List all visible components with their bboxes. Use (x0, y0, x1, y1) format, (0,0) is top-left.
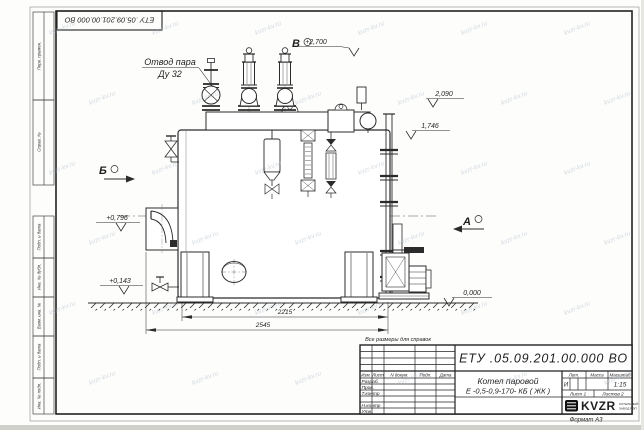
view-a-ref-circle (475, 216, 482, 223)
svg-text:kvzr-kv.ru: kvzr-kv.ru (397, 90, 426, 107)
svg-text:kvzr-kv.ru: kvzr-kv.ru (357, 20, 386, 37)
support-leg-front (177, 252, 213, 302)
burner-unit (379, 247, 431, 299)
elevation-0796: +0,796 (106, 215, 128, 222)
top-stamp-number: ЕТУ .05.09.201.00.000 ВО (64, 16, 154, 25)
svg-text:kvzr-kv.ru: kvzr-kv.ru (460, 20, 489, 37)
scan-shadow-bottom (0, 425, 644, 430)
view-label-b: Б (99, 165, 107, 177)
row-utv: Утв. (362, 409, 373, 415)
drawing-sheet: Перв. примен. Справ. № Подп. и дата Инв.… (0, 0, 644, 430)
svg-text:kvzr-kv.ru: kvzr-kv.ru (151, 20, 180, 37)
margin-label-inv-podl: Инв. № подл. (37, 383, 42, 410)
elevation-1746: 1,746 (421, 123, 439, 130)
svg-text:kvzr-kv.ru: kvzr-kv.ru (500, 90, 529, 107)
support-leg-rear (341, 252, 377, 302)
dimension-inner-value: 2215 (277, 309, 293, 316)
brand-subtitle-1: КОТЕЛЬНЫЙ (619, 402, 638, 406)
view-label-a: А (462, 216, 471, 228)
view-a-arrow (453, 226, 462, 233)
svg-text:kvzr-kv.ru: kvzr-kv.ru (254, 20, 283, 37)
elevation-0143: +0,143 (109, 278, 131, 285)
row-razrab: Разраб. (362, 379, 379, 385)
svg-text:kvzr-kv.ru: kvzr-kv.ru (48, 300, 77, 317)
svg-text:kvzr-kv.ru: kvzr-kv.ru (563, 20, 592, 37)
steam-outlet-label-2: Ду 32 (157, 69, 181, 79)
sheet-number: Лист 1 (569, 392, 587, 398)
svg-text:kvzr-kv.ru: kvzr-kv.ru (48, 20, 77, 37)
boiler-drawing (88, 48, 478, 311)
col-header-date: Дата (439, 372, 452, 377)
svg-text:kvzr-kv.ru: kvzr-kv.ru (151, 160, 180, 177)
steam-outlet-label-1: Отвод пара (144, 57, 195, 67)
svg-text:kvzr-kv.ru: kvzr-kv.ru (191, 370, 220, 387)
front-elbow-duct (146, 204, 178, 253)
svg-text:kvzr-kv.ru: kvzr-kv.ru (48, 160, 77, 177)
svg-text:kvzr-kv.ru: kvzr-kv.ru (294, 370, 323, 387)
view-b-ref-circle (111, 166, 118, 173)
margin-label-inv-dubl: Инв. № дубл. (37, 264, 42, 290)
reference-note: Все размеры для справок (365, 337, 431, 343)
product-name-line2: Е -0,5-0,9-170- КБ ( ЖК ) (466, 387, 551, 396)
row-prov: Пров. (362, 385, 375, 391)
lit-label: Лит. (568, 372, 580, 377)
title-doc-number: ЕТУ .05.09.201.00.000 ВО (459, 352, 628, 366)
svg-text:kvzr-kv.ru: kvzr-kv.ru (460, 300, 489, 317)
brand-subtitle-2: ЗАВОД РЭП (619, 407, 637, 411)
safety-valve-1 (238, 48, 260, 112)
margin-label-perv-primen: Перв. примен. (37, 42, 42, 71)
margin-label-sprav-no: Справ. № (37, 132, 42, 152)
svg-text:kvzr-kv.ru: kvzr-kv.ru (294, 90, 323, 107)
brand-name: KVZR (581, 399, 616, 413)
col-header-list: Лист (371, 372, 384, 377)
svg-text:kvzr-kv.ru: kvzr-kv.ru (88, 90, 117, 107)
format-note: Формат А3 (570, 418, 603, 424)
manometer-assembly (328, 87, 376, 133)
margin-label-podp-data-2: Подп. и дата (37, 343, 42, 371)
col-header-izm: Изм. (361, 372, 371, 377)
svg-text:kvzr-kv.ru: kvzr-kv.ru (460, 160, 489, 177)
dimension-outer-value: 2545 (255, 322, 271, 329)
row-nkontr: Н.контр (362, 403, 381, 409)
front-bottom-valve (152, 277, 179, 291)
view-label-v: В (292, 38, 300, 50)
view-b-arrow (126, 176, 135, 183)
lit-value: И (564, 383, 569, 389)
elevation-2090: 2,090 (434, 91, 453, 98)
svg-text:kvzr-kv.ru: kvzr-kv.ru (603, 90, 632, 107)
svg-text:kvzr-kv.ru: kvzr-kv.ru (563, 160, 592, 177)
elevation-zero: 0,000 (463, 290, 481, 297)
mass-label: Масса (590, 372, 604, 377)
safety-valve-2 (274, 48, 296, 112)
front-top-valve (165, 136, 179, 162)
svg-text:kvzr-kv.ru: kvzr-kv.ru (603, 230, 632, 247)
sheets-total: Листов 2 (601, 392, 624, 398)
svg-text:kvzr-kv.ru: kvzr-kv.ru (500, 230, 529, 247)
svg-text:kvzr-kv.ru: kvzr-kv.ru (88, 230, 117, 247)
row-tkontr: Т.контр (362, 391, 380, 397)
margin-label-vzam-inv: Взам. инв. № (37, 302, 42, 329)
svg-text:kvzr-kv.ru: kvzr-kv.ru (88, 370, 117, 387)
svg-text:kvzr-kv.ru: kvzr-kv.ru (563, 300, 592, 317)
elevation-top: +2,700 (305, 39, 327, 46)
margin-label-podp-data-1: Подп. и дата (37, 223, 42, 251)
